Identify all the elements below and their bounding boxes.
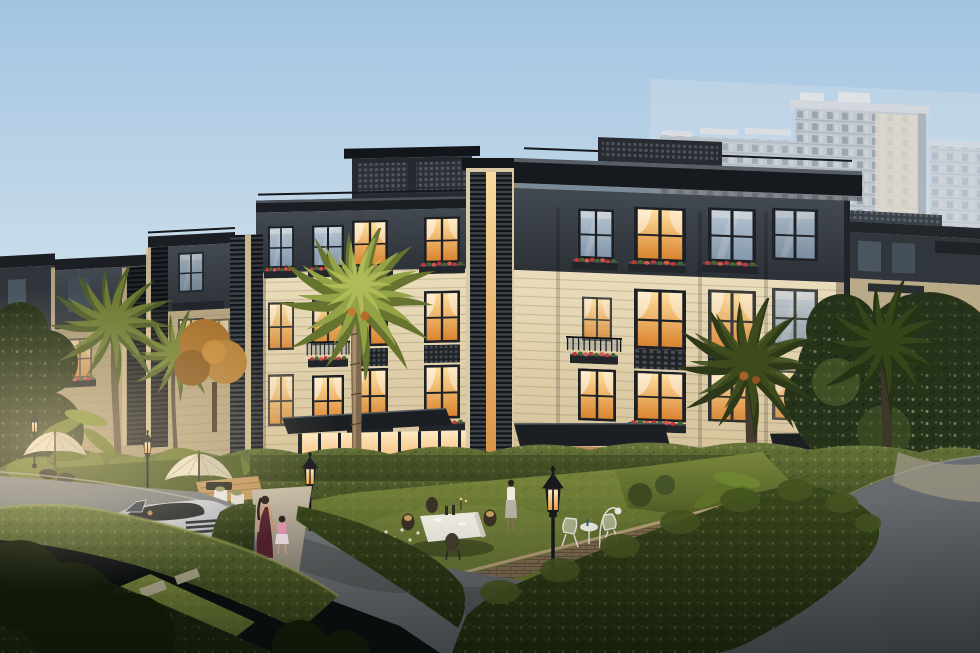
rooftop-lattice [416, 161, 466, 194]
lattice-spandrel [424, 344, 460, 363]
rendering-canvas: Dusk rendering of a modern oriental-styl… [0, 0, 980, 653]
window-stack [628, 206, 686, 433]
vignette [0, 500, 980, 653]
window [634, 370, 686, 422]
palm-dates [752, 376, 760, 384]
palm-dates [361, 312, 370, 321]
window [578, 208, 614, 259]
window [708, 207, 756, 263]
window [578, 368, 616, 421]
window [634, 206, 686, 262]
palm-dates [348, 308, 356, 316]
shrub [655, 475, 675, 495]
window [858, 241, 881, 272]
palm-dates [740, 372, 749, 381]
window [424, 290, 460, 343]
window [268, 302, 294, 351]
window [772, 208, 818, 262]
window [268, 226, 294, 269]
glass-slot [486, 172, 496, 476]
window [178, 252, 204, 293]
villa-compound-rendering: Dusk rendering of a modern oriental-styl… [0, 0, 980, 653]
window-stack [419, 216, 465, 432]
rooftop-lattice [358, 162, 408, 195]
window [582, 296, 612, 341]
louver-pilaster-center [462, 158, 520, 478]
window [892, 242, 915, 273]
window [424, 216, 460, 263]
window [634, 288, 686, 350]
